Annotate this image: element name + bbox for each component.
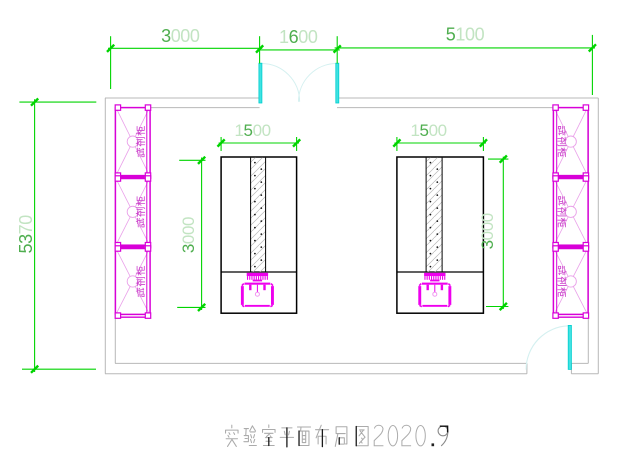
svg-text:1500: 1500 — [410, 121, 446, 140]
svg-text:5370: 5370 — [16, 215, 36, 254]
svg-text:3000: 3000 — [477, 213, 496, 249]
svg-text:5100: 5100 — [446, 25, 485, 45]
svg-text:1600: 1600 — [279, 27, 318, 47]
svg-text:3000: 3000 — [161, 26, 200, 46]
svg-text:3000: 3000 — [179, 217, 198, 253]
svg-text:1500: 1500 — [234, 121, 270, 140]
